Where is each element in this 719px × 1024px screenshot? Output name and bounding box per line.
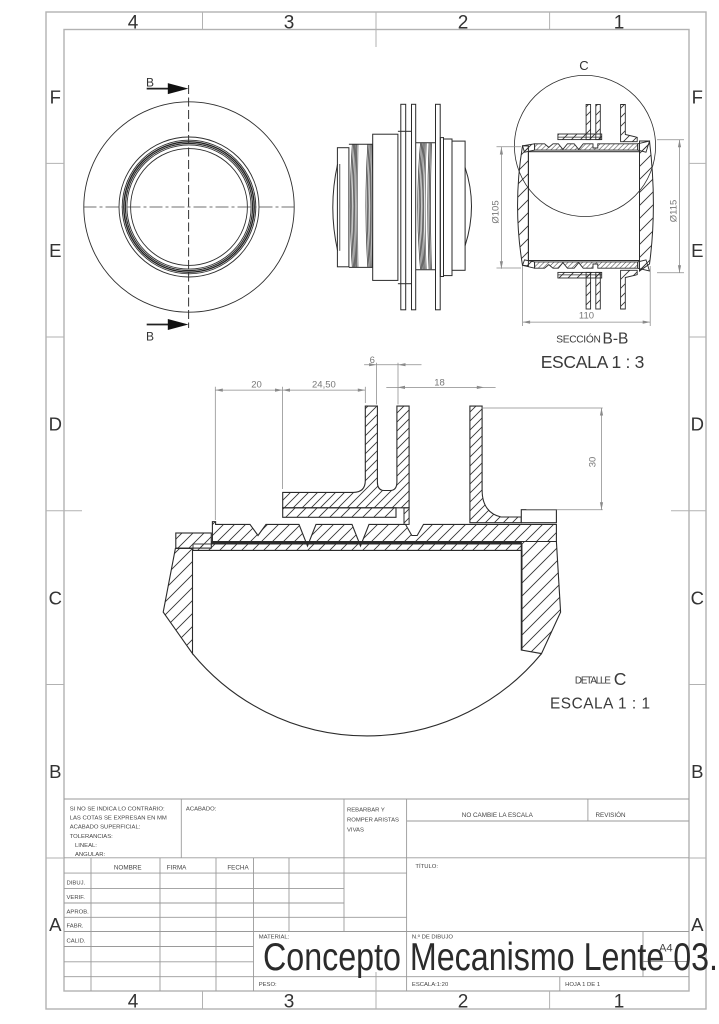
svg-text:Ø115: Ø115: [668, 200, 679, 223]
svg-text:APROB.: APROB.: [67, 909, 90, 915]
svg-text:1: 1: [614, 13, 625, 34]
svg-text:C: C: [579, 58, 588, 73]
svg-text:E: E: [49, 240, 61, 261]
svg-text:VIVAS: VIVAS: [347, 828, 364, 834]
svg-text:ACABADO:: ACABADO:: [186, 807, 217, 813]
svg-text:REBARBAR Y: REBARBAR Y: [347, 808, 385, 814]
svg-text:FECHA: FECHA: [227, 865, 249, 872]
svg-text:TÍTULO:: TÍTULO:: [415, 863, 438, 870]
svg-text:B-B: B-B: [603, 331, 629, 348]
svg-text:F: F: [50, 87, 61, 108]
svg-text:SI NO SE INDICA LO CONTRARIO:: SI NO SE INDICA LO CONTRARIO:: [70, 807, 165, 813]
svg-text:VERIF.: VERIF.: [67, 895, 86, 901]
svg-text:LINEAL:: LINEAL:: [75, 843, 97, 849]
svg-text:D: D: [49, 414, 62, 435]
svg-text:A: A: [691, 914, 704, 935]
svg-text:110: 110: [579, 311, 594, 322]
svg-text:C: C: [49, 587, 62, 608]
svg-text:SECCIÓN: SECCIÓN: [556, 332, 601, 345]
svg-text:HOJA 1 DE 1: HOJA 1 DE 1: [565, 982, 600, 988]
svg-text:2: 2: [458, 991, 469, 1012]
svg-text:DIBUJ.: DIBUJ.: [67, 880, 86, 886]
svg-text:FIRMA: FIRMA: [167, 865, 187, 872]
svg-text:E: E: [691, 240, 703, 261]
svg-text:24,50: 24,50: [312, 380, 336, 391]
svg-text:NOMBRE: NOMBRE: [114, 865, 142, 872]
svg-text:FABR.: FABR.: [67, 924, 84, 930]
svg-text:30: 30: [588, 457, 599, 468]
svg-text:20: 20: [251, 380, 262, 391]
svg-text:3: 3: [284, 991, 295, 1012]
svg-text:3: 3: [284, 13, 295, 34]
svg-text:ANGULAR:: ANGULAR:: [75, 852, 105, 858]
svg-text:B: B: [49, 761, 61, 782]
svg-text:TOLERANCIAS:: TOLERANCIAS:: [70, 834, 113, 840]
svg-text:REVISIÓN: REVISIÓN: [595, 810, 626, 819]
svg-text:C: C: [691, 587, 704, 608]
svg-text:4: 4: [128, 13, 139, 34]
svg-text:1: 1: [614, 991, 625, 1012]
svg-text:B: B: [146, 76, 154, 90]
svg-text:18: 18: [434, 377, 445, 388]
svg-text:A: A: [49, 914, 62, 935]
svg-text:PESO:: PESO:: [259, 982, 277, 988]
svg-text:2: 2: [458, 13, 469, 34]
svg-text:6: 6: [370, 355, 375, 366]
svg-text:NO CAMBIE LA ESCALA: NO CAMBIE LA ESCALA: [462, 812, 534, 819]
svg-text:ESCALA 1 : 1: ESCALA 1 : 1: [550, 696, 651, 713]
svg-text:ACABADO SUPERFICIAL:: ACABADO SUPERFICIAL:: [70, 825, 141, 831]
svg-text:LAS COTAS SE EXPRESAN EN MM: LAS COTAS SE EXPRESAN EN MM: [70, 816, 167, 822]
svg-text:ESCALA 1 : 3: ESCALA 1 : 3: [541, 352, 644, 372]
svg-text:B: B: [691, 761, 703, 782]
svg-text:Concepto Mecanismo Lente 03.: Concepto Mecanismo Lente 03.: [263, 936, 718, 979]
svg-text:B: B: [146, 330, 154, 344]
svg-text:Ø105: Ø105: [491, 200, 502, 223]
svg-text:DETALLE: DETALLE: [575, 676, 611, 687]
svg-text:ROMPER ARISTAS: ROMPER ARISTAS: [347, 818, 399, 824]
svg-text:ESCALA:1:20: ESCALA:1:20: [412, 982, 449, 988]
svg-text:D: D: [691, 414, 704, 435]
svg-text:4: 4: [128, 991, 139, 1012]
svg-text:CALID.: CALID.: [67, 939, 86, 945]
svg-text:F: F: [692, 87, 703, 108]
svg-text:C: C: [614, 669, 627, 689]
